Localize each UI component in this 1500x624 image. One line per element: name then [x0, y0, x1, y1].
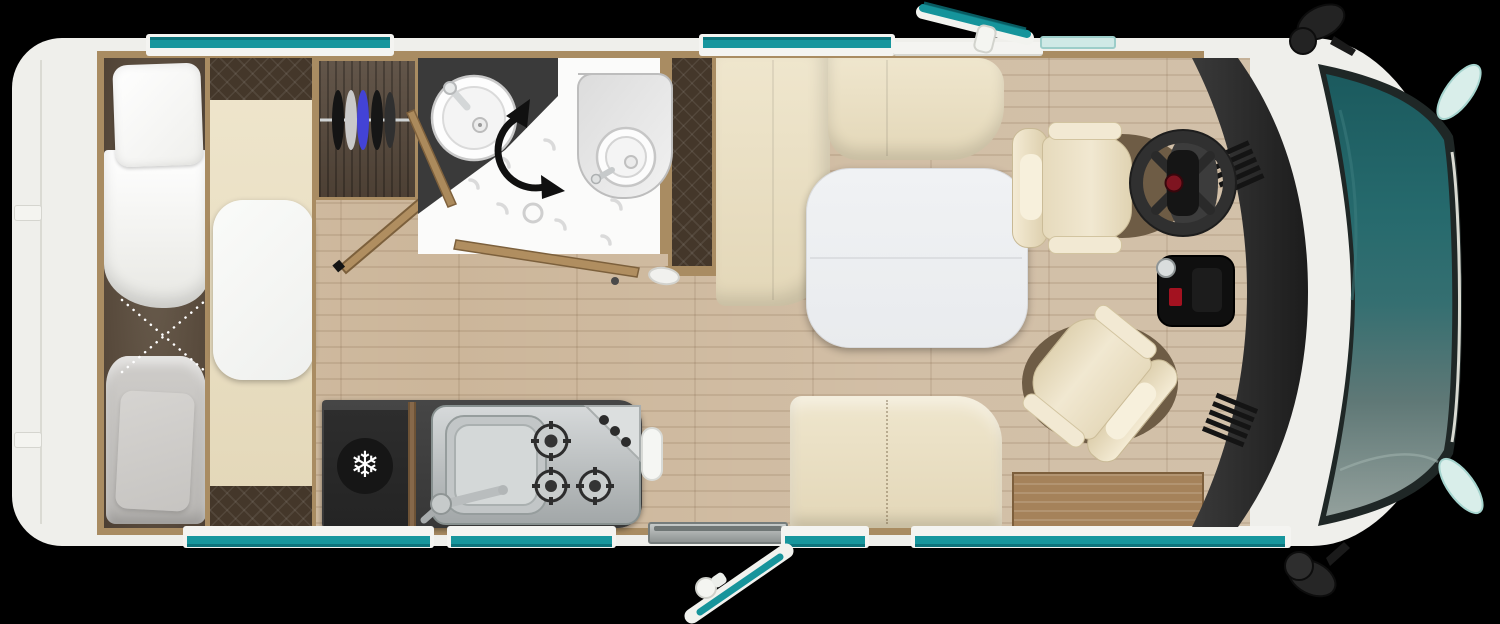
- hob-knob: [621, 437, 631, 447]
- fixtures-overlay: [0, 0, 1500, 624]
- shower-drain: [524, 204, 542, 222]
- kitchen-sink-hob-unit: [424, 406, 662, 524]
- door-stop: [648, 266, 680, 286]
- toilet: [578, 74, 672, 198]
- wardrobe-open-door: [332, 198, 426, 273]
- hanger: [357, 90, 369, 150]
- washbasin: [432, 76, 516, 160]
- hob-knob: [610, 426, 620, 436]
- bathroom-open-door: [454, 240, 680, 286]
- hanger: [332, 90, 344, 150]
- counter-end-canister: [642, 428, 662, 480]
- hanger: [345, 90, 357, 150]
- hob-knob: [599, 415, 609, 425]
- open-roof-window: [923, 3, 1027, 54]
- entry-open-door: [692, 551, 786, 616]
- mirror-top: [1290, 0, 1356, 56]
- bed-stitching: [122, 300, 206, 372]
- steering-badge: [1166, 175, 1183, 192]
- headlight-top: [1430, 58, 1489, 125]
- gear-console: [1157, 256, 1234, 326]
- headlight-bottom: [1432, 452, 1491, 519]
- hanger: [385, 92, 396, 148]
- mirror-bottom: [1282, 542, 1350, 604]
- motorhome-floorplan: ❄: [0, 0, 1500, 624]
- windshield: [1318, 64, 1462, 526]
- wardrobe-rail-and-hangers: [320, 90, 414, 150]
- hanger: [371, 90, 383, 150]
